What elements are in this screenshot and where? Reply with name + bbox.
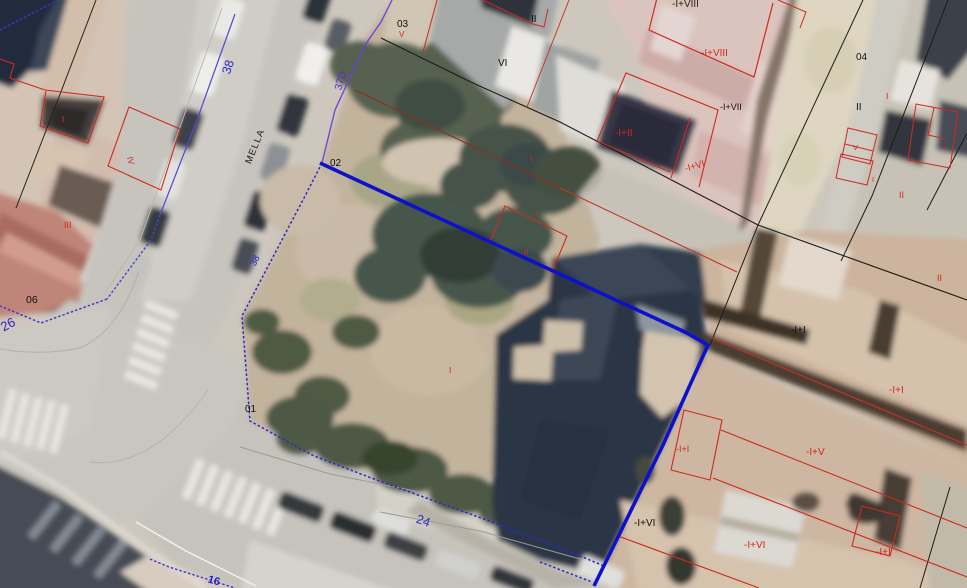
svg-text:V: V [399,30,405,39]
svg-text:II: II [531,14,537,25]
svg-text:II: II [524,247,529,257]
svg-text:-I+VIII: -I+VIII [701,48,728,59]
svg-text:-I+I: -I+I [676,444,689,454]
svg-text:I: I [62,114,64,124]
svg-text:-I+VI: -I+VI [634,518,655,529]
svg-text:II: II [899,190,904,200]
svg-text:-I+II: -I+II [615,128,633,139]
svg-text:VI: VI [498,58,507,69]
svg-text:I: I [449,365,451,375]
svg-text:-I+VII: -I+VII [720,102,742,112]
svg-text:-I+VIII: -I+VIII [672,0,699,10]
svg-text:V: V [853,143,858,152]
svg-text:I: I [872,175,874,184]
svg-text:-I+V: -I+V [806,447,825,458]
svg-text:I: I [536,208,538,218]
svg-text:04: 04 [856,52,868,63]
svg-text:-I+I: -I+I [876,547,891,558]
svg-text:I: I [944,143,946,152]
svg-text:III: III [64,220,72,230]
svg-text:-I+VI: -I+VI [744,540,765,551]
svg-text:II: II [937,273,942,283]
svg-text:02: 02 [330,158,342,169]
svg-text:03: 03 [397,19,409,30]
svg-text:06: 06 [26,294,38,306]
svg-text:01: 01 [245,404,257,415]
svg-text:-I+I: -I+I [889,385,904,396]
svg-text:I: I [530,154,532,164]
svg-text:I: I [886,91,888,101]
svg-text:II: II [856,102,862,113]
svg-text:-I+I: -I+I [791,325,806,336]
